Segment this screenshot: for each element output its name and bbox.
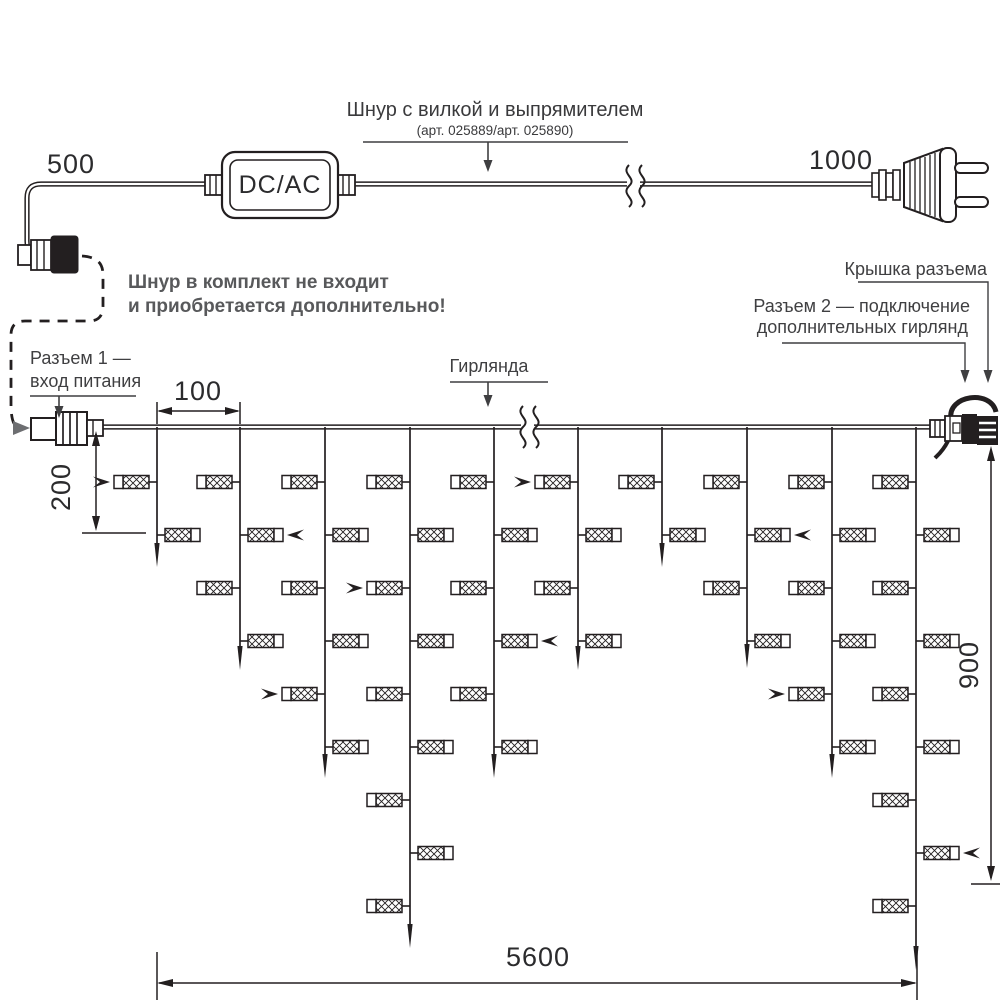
not-included-note: Шнур в комплект не входит и приобретаетс… [128,272,446,317]
icicle-drop [346,427,453,948]
lamp-bulb [333,635,359,648]
drop-tip [322,754,327,778]
icicle-drop [197,427,304,670]
lamp-cap [873,582,882,595]
lamp-cap [704,476,713,489]
lamp-cap [866,741,875,754]
left-arrow-icon [157,979,173,987]
lamp-bulb [248,529,274,542]
cord-subtitle: (арт. 025889/арт. 025890) [417,123,574,138]
lamp-bulb [248,635,274,648]
lamp-cap [873,476,882,489]
cap-label: Крышка разъема [845,259,988,279]
garland-callout: Гирлянда [450,356,548,407]
lamp-cap [367,794,376,807]
lamp-cap [619,476,628,489]
down-arrow-icon [92,516,100,531]
lamp-cap [197,582,206,595]
lamp-cap [950,847,959,860]
connector2-line1: Разъем 2 — подключение [753,296,970,316]
lamp-bulb [586,529,612,542]
icicle-drop [704,427,811,668]
lamp-bulb [291,476,317,489]
note-line2: и приобретается дополнительно! [128,296,446,317]
connector1-callout: Разъем 1 — вход питания [30,348,141,418]
icicle-drops-layer [93,427,980,970]
lamp-bulb [882,900,908,913]
lamp-bulb [882,476,908,489]
lamp-cap [535,476,544,489]
icicle-drop [873,427,980,970]
lamp-cap [274,529,283,542]
lamp-cap [197,476,206,489]
cord-break-mark [626,165,644,207]
converter-label: DC/AC [239,171,322,199]
down-arrow-icon [984,370,993,383]
lamp-bulb [713,476,739,489]
lamp-bulb [418,847,444,860]
lamp-bulb [755,635,781,648]
lamp-bulb [376,688,402,701]
lamp-cap [367,476,376,489]
lamp-bulb [924,741,950,754]
lamp-cap [282,688,291,701]
lamp-cap [950,741,959,754]
lamp-cap [873,688,882,701]
lamp-bulb [882,794,908,807]
dim-200-label: 200 [46,463,76,511]
drop-tip [575,646,580,670]
lamp-bulb [502,529,528,542]
right-arrow-icon [901,979,917,987]
dim-500-label: 500 [47,149,95,179]
drop-tip [491,754,496,778]
right-arrow-icon [225,407,240,415]
down-arrow-icon [484,160,493,172]
dim-100-label: 100 [174,376,222,406]
lamp-cap [866,529,875,542]
connector2-line2: дополнительных гирлянд [757,317,969,337]
lamp-cap [866,635,875,648]
lamp-bulb [840,529,866,542]
drop-tip [829,754,834,778]
cord-title: Шнур с вилкой и выпрямителем [347,99,644,121]
right-arrow-icon [13,421,30,435]
lamp-cap [612,529,621,542]
lamp-cap [873,900,882,913]
lamp-bulb [544,476,570,489]
lamp-cap [696,529,705,542]
dim-5600-label: 5600 [506,942,570,972]
lamp-cap [704,582,713,595]
lamp-bulb [460,476,486,489]
converter-left-nub [205,175,222,195]
drop-tip [407,924,412,948]
lamp-bulb [840,741,866,754]
lamp-cap [367,900,376,913]
lamp-pointer-left-arrow-icon [794,530,811,541]
icicle-drop [93,427,200,567]
lamp-cap [789,476,798,489]
connector1-line2: вход питания [30,371,141,391]
lamp-cap [444,741,453,754]
lamp-bulb [798,582,824,595]
input-connector [31,412,103,445]
lamp-cap [282,476,291,489]
lamp-bulb [502,635,528,648]
dc-ac-converter: DC/AC [205,152,355,218]
lamp-cap [367,688,376,701]
lamp-bulb [882,688,908,701]
lamp-bulb [165,529,191,542]
icicle-drop [514,427,621,670]
lamp-bulb [798,476,824,489]
dim-100: 100 [157,376,240,424]
connector2-callout: Разъем 2 — подключение дополнительных ги… [753,296,970,383]
dim-900: 900 [954,446,1000,884]
garland-diagram: DC/AC 500 1000 [0,0,1000,1000]
lamp-cap [451,582,460,595]
drop-tip [659,543,664,567]
lamp-bulb [376,476,402,489]
power-plug [872,148,988,222]
lamp-cap [191,529,200,542]
lamp-cap [612,635,621,648]
lamp-cap [451,476,460,489]
lamp-cap [528,741,537,754]
lamp-bulb [376,900,402,913]
icicle-drop [768,427,875,778]
lamp-bulb [123,476,149,489]
lamp-cap [367,582,376,595]
lamp-cap [789,688,798,701]
connector-body [962,414,977,444]
converter-right-nub [338,175,355,195]
lamp-cap [873,794,882,807]
lamp-bulb [713,582,739,595]
lamp-cap [359,741,368,754]
garland-break-mark [520,406,538,448]
lamp-bulb [418,741,444,754]
lamp-bulb [924,847,950,860]
lamp-bulb [755,529,781,542]
garland-label: Гирлянда [450,356,530,376]
lamp-bulb [376,794,402,807]
lamp-cap [444,635,453,648]
lamp-pointer-right-arrow-icon [261,689,278,700]
lamp-bulb [418,635,444,648]
cord-callout: Шнур с вилкой и выпрямителем (арт. 02588… [347,99,644,172]
icicle-drop [261,427,368,778]
lamp-bulb [206,582,232,595]
drop-tip [154,543,159,567]
lamp-bulb [206,476,232,489]
lamp-bulb [670,529,696,542]
lamp-bulb [460,582,486,595]
lamp-cap [114,476,123,489]
output-connector [930,398,998,458]
lamp-cap [535,582,544,595]
lamp-bulb [798,688,824,701]
lamp-cap [528,635,537,648]
lamp-cap [528,529,537,542]
lamp-cap [274,635,283,648]
lamp-bulb [544,582,570,595]
lamp-pointer-left-arrow-icon [287,530,304,541]
lamp-cap [282,582,291,595]
down-arrow-icon [987,866,995,881]
up-arrow-icon [987,446,995,461]
lamp-cap [451,688,460,701]
lamp-bulb [291,688,317,701]
down-arrow-icon [484,395,493,407]
drop-tip [237,646,242,670]
down-arrow-icon [961,370,970,383]
lamp-bulb [291,582,317,595]
lamp-cap [444,529,453,542]
lamp-pointer-left-arrow-icon [963,848,980,859]
lamp-bulb [882,582,908,595]
left-arrow-icon [157,407,172,415]
lamp-bulb [840,635,866,648]
lamp-cap [444,847,453,860]
dim-5600: 5600 [157,942,917,1000]
lamp-bulb [924,529,950,542]
icicle-drop [619,427,705,567]
lamp-bulb [418,529,444,542]
connector1-line1: Разъем 1 — [30,348,131,368]
lamp-bulb [333,741,359,754]
drop-tip [744,644,749,668]
note-line1: Шнур в комплект не входит [128,272,389,293]
lamp-bulb [502,741,528,754]
lamp-bulb [376,582,402,595]
lamp-cap [950,529,959,542]
lamp-pointer-right-arrow-icon [514,477,531,488]
dim-900-label: 900 [954,641,984,689]
plug-prong [955,163,988,173]
lamp-bulb [586,635,612,648]
lamp-cap [781,635,790,648]
drop-tip [913,946,918,970]
diagram-canvas: DC/AC 500 1000 [0,0,1000,1000]
lamp-bulb [628,476,654,489]
dim-1000-label: 1000 [809,145,873,175]
power-cord-section: DC/AC 500 1000 [18,99,988,273]
lamp-cap [359,635,368,648]
lamp-pointer-right-arrow-icon [768,689,785,700]
lamp-cap [781,529,790,542]
lamp-bulb [460,688,486,701]
plug-prong [955,197,988,207]
lamp-pointer-right-arrow-icon [346,583,363,594]
lamp-pointer-left-arrow-icon [541,636,558,647]
lamp-bulb [333,529,359,542]
lamp-bulb [924,635,950,648]
lamp-cap [359,529,368,542]
lamp-cap [789,582,798,595]
